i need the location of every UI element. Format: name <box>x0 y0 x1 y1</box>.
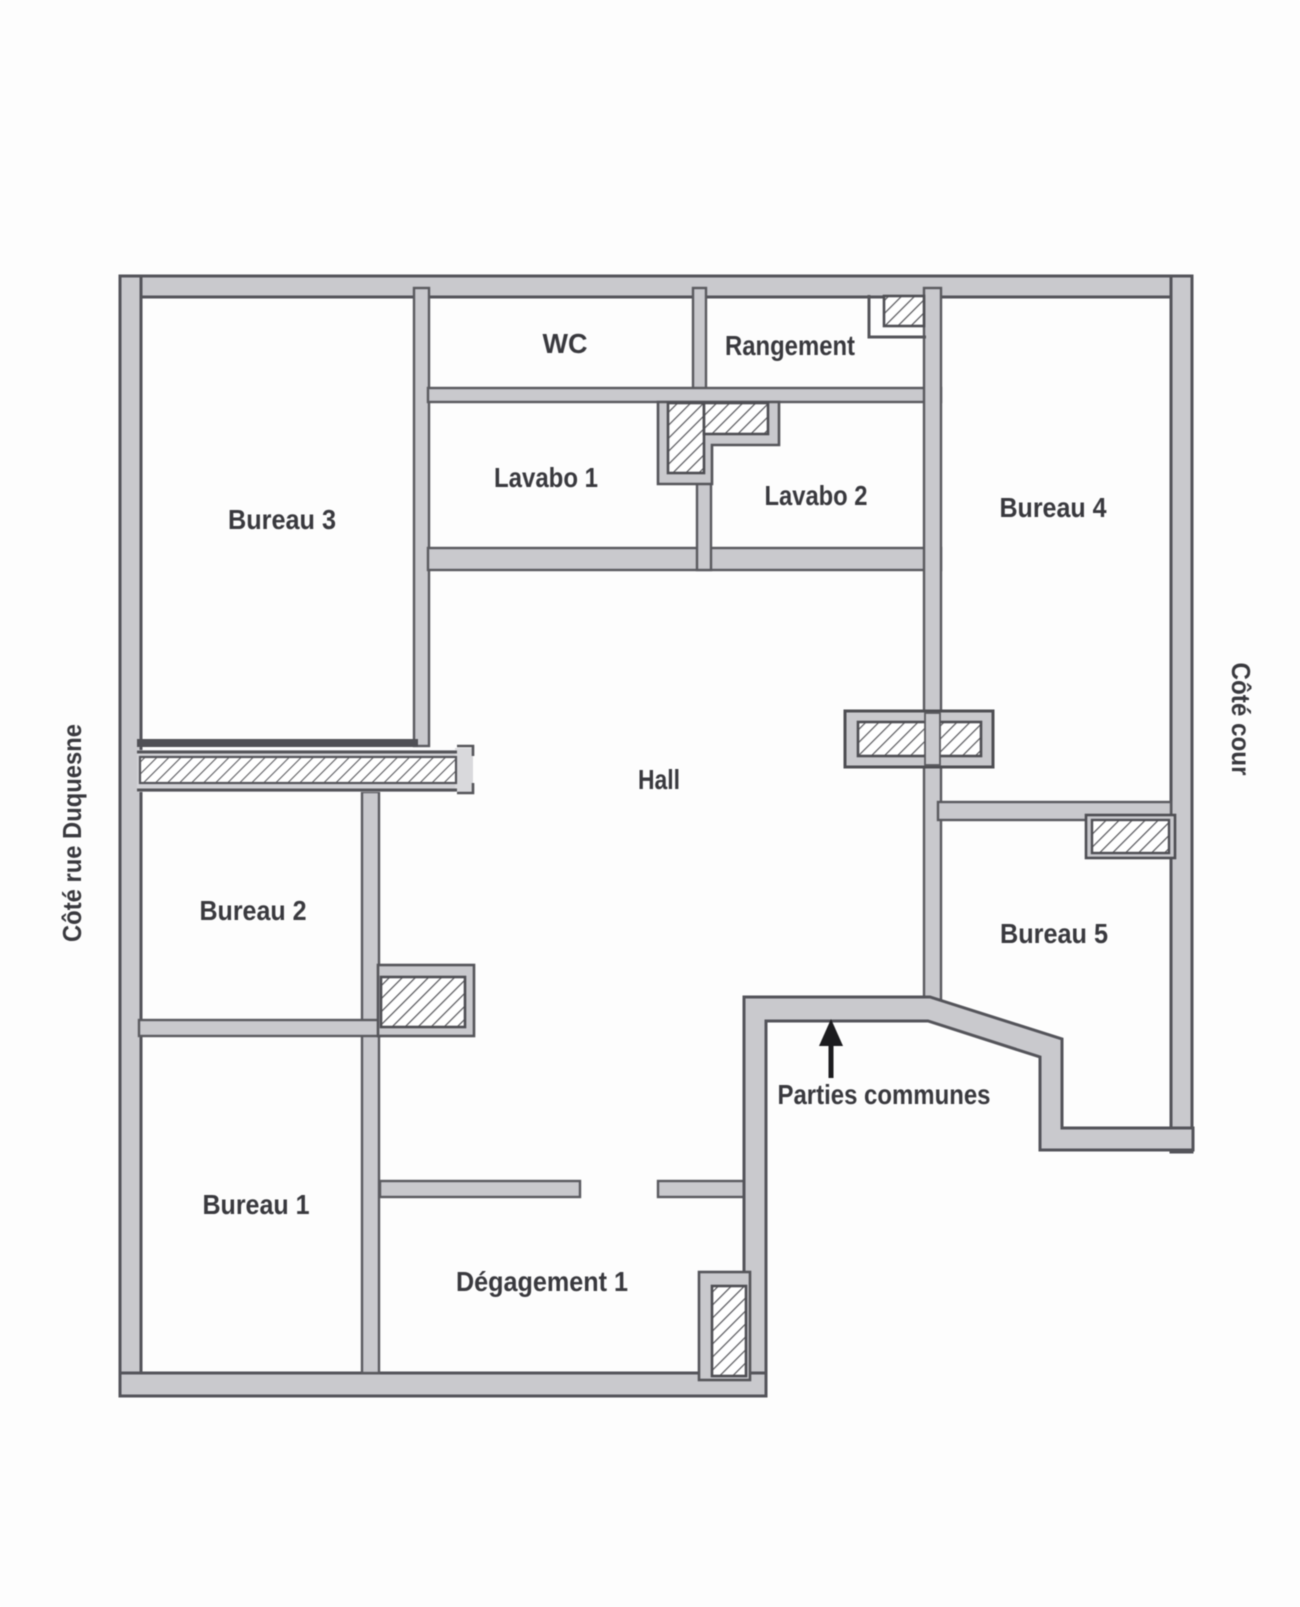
svg-text:Parties communes: Parties communes <box>778 1079 991 1110</box>
svg-text:Lavabo 1: Lavabo 1 <box>494 462 598 493</box>
svg-text:Bureau 1: Bureau 1 <box>203 1189 310 1220</box>
svg-text:Côté rue Duquesne: Côté rue Duquesne <box>57 724 87 942</box>
svg-text:WC: WC <box>543 328 588 359</box>
svg-text:Hall: Hall <box>638 764 680 795</box>
svg-text:Bureau 3: Bureau 3 <box>228 504 336 535</box>
svg-text:Rangement: Rangement <box>725 330 855 361</box>
svg-text:Lavabo 2: Lavabo 2 <box>765 480 868 511</box>
svg-text:Bureau 5: Bureau 5 <box>1000 918 1108 949</box>
svg-text:Bureau 2: Bureau 2 <box>200 895 307 926</box>
svg-text:Côté cour: Côté cour <box>1226 663 1256 776</box>
svg-text:Dégagement 1: Dégagement 1 <box>456 1266 628 1297</box>
svg-text:Bureau 4: Bureau 4 <box>1000 492 1107 523</box>
